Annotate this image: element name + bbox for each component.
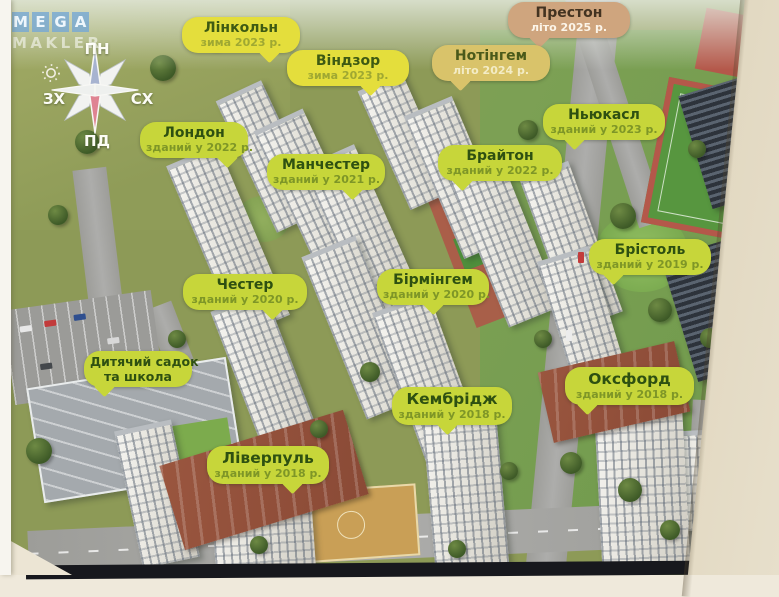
label-newcastle: Ньюкасл зданий у 2023 р. [543, 104, 665, 140]
label-chester: Честер зданий у 2020 р. [183, 274, 307, 310]
tree [534, 330, 552, 348]
label-subtitle: літо 2024 р. [438, 64, 544, 77]
label-title: Ліверпуль [213, 449, 323, 467]
watermark-makler: MAKLER [12, 34, 103, 52]
tree [48, 205, 68, 225]
label-subtitle: зданий у 2022 р. [146, 141, 242, 154]
tree [610, 203, 636, 229]
sun-icon [40, 62, 62, 84]
watermark-letter: M [12, 12, 29, 32]
car [578, 252, 584, 263]
label-bristol: Брістоль зданий у 2019 р. [589, 239, 711, 275]
label-subtitle: зима 2023 р. [188, 36, 294, 49]
car [566, 330, 572, 341]
label-lincoln: Лінкольн зима 2023 р. [182, 17, 300, 53]
label-title: Лондон [146, 125, 242, 141]
label-title: Віндзор [293, 53, 403, 69]
label-title: Престон [514, 5, 624, 21]
label-kindergarten-school: Дитячий садок та школа [84, 351, 192, 387]
label-subtitle: зданий у 2019 р. [595, 258, 705, 271]
label-subtitle: зданий у 2018 р. [213, 467, 323, 480]
watermark-letter: A [72, 12, 89, 32]
tree [688, 140, 706, 158]
label-subtitle: зданий у 2022 р. [444, 164, 556, 177]
tree [660, 520, 680, 540]
label-subtitle: зданий у 2018 р. [398, 408, 506, 421]
label-preston: Престон літо 2025 р. [508, 2, 630, 38]
paper-left-edge [0, 0, 11, 575]
label-subtitle: літо 2025 р. [514, 21, 624, 34]
label-subtitle: зданий у 2020 р. [189, 293, 301, 306]
label-london: Лондон зданий у 2022 р. [140, 122, 248, 158]
label-title: Брайтон [444, 148, 556, 164]
label-subtitle: та школа [90, 370, 186, 383]
label-title: Оксфорд [571, 370, 688, 388]
watermark-letter: G [52, 12, 69, 32]
label-subtitle: зима 2023 р. [293, 69, 403, 82]
compass-east-label: СХ [131, 90, 154, 108]
label-title: Дитячий садок [90, 354, 186, 370]
label-title: Брістоль [595, 242, 705, 258]
car [40, 362, 53, 370]
label-title: Лінкольн [188, 20, 294, 36]
label-title: Бірмінгем [383, 272, 483, 288]
tree [560, 452, 582, 474]
label-title: Манчестер [273, 157, 379, 173]
label-birmingham: Бірмінгем зданий у 2020 р. [377, 269, 489, 305]
compass-south-label: ПД [84, 132, 110, 150]
label-subtitle: зданий у 2018 р. [571, 388, 688, 401]
tree [448, 540, 466, 558]
car [107, 337, 120, 345]
tree [500, 462, 518, 480]
label-title: Кембрідж [398, 390, 506, 408]
label-title: Ньюкасл [549, 107, 659, 123]
tree [648, 298, 672, 322]
label-manchester: Манчестер зданий у 2021 р. [267, 154, 385, 190]
label-oxford: Оксфорд зданий у 2018 р. [565, 367, 694, 405]
label-brighton: Брайтон зданий у 2022 р. [438, 145, 562, 181]
mega-makler-watermark: M E G A MAKLER [12, 12, 103, 52]
watermark-letter: E [32, 12, 49, 32]
label-liverpool: Ліверпуль зданий у 2018 р. [207, 446, 329, 484]
tree [618, 478, 642, 502]
label-title: Нотінгем [438, 48, 544, 64]
car [73, 313, 86, 321]
car [44, 320, 57, 328]
tree [518, 120, 538, 140]
car [19, 325, 32, 333]
compass-west-label: ЗХ [43, 90, 65, 108]
label-cambridge: Кембрідж зданий у 2018 р. [392, 387, 512, 425]
label-nottingham: Нотінгем літо 2024 р. [432, 45, 550, 81]
tree [310, 420, 328, 438]
tree [250, 536, 268, 554]
tree [168, 330, 186, 348]
watermark-mega: M E G A [12, 12, 103, 32]
label-windsor: Віндзор зима 2023 р. [287, 50, 409, 86]
tree [700, 328, 720, 348]
label-title: Честер [189, 277, 301, 293]
label-subtitle: зданий у 2021 р. [273, 173, 379, 186]
tree [26, 438, 52, 464]
label-subtitle: зданий у 2023 р. [549, 123, 659, 136]
tree [360, 362, 380, 382]
label-subtitle: зданий у 2020 р. [383, 288, 483, 301]
